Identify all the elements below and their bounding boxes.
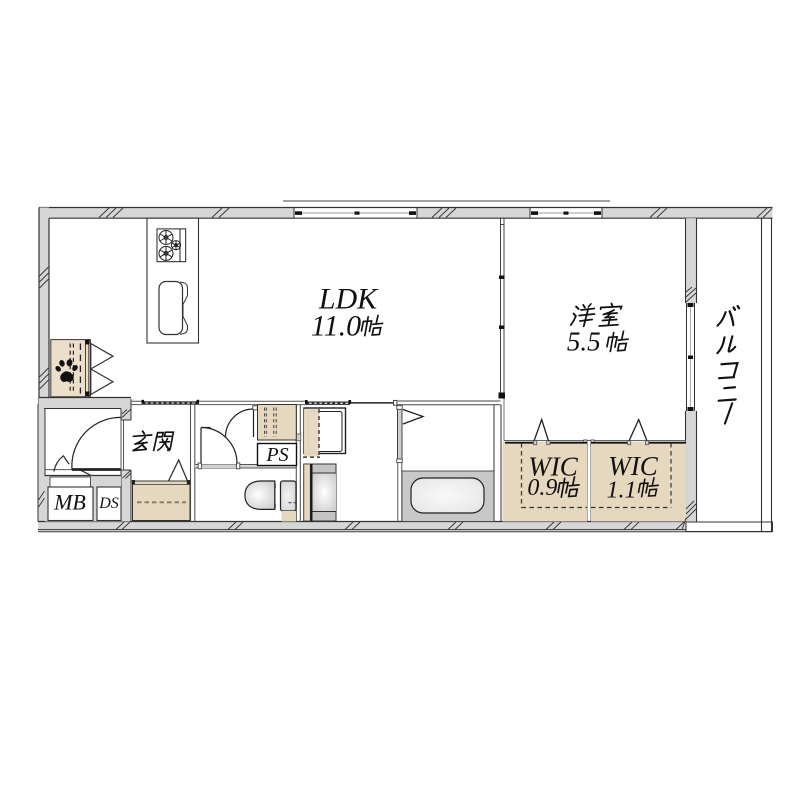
svg-text:1.1: 1.1 bbox=[607, 478, 637, 504]
svg-text:WIC: WIC bbox=[608, 451, 658, 481]
svg-text:PS: PS bbox=[265, 444, 288, 466]
svg-text:0.9: 0.9 bbox=[527, 475, 557, 501]
svg-text:DS: DS bbox=[98, 495, 119, 512]
svg-text:MB: MB bbox=[53, 490, 86, 515]
svg-text:5.5: 5.5 bbox=[567, 327, 601, 357]
svg-text:11.0: 11.0 bbox=[311, 310, 361, 343]
